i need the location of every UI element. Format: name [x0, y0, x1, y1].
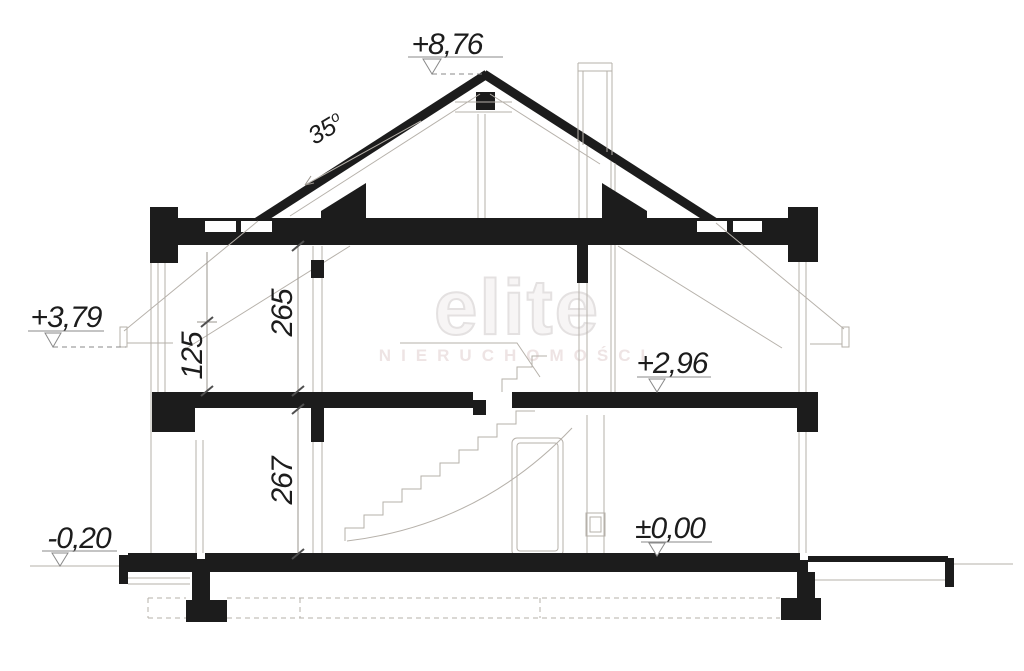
attic-left-window [158, 263, 165, 392]
level-triangle [52, 553, 68, 566]
level-triangle [423, 59, 441, 74]
right-terrace-slab [808, 556, 948, 562]
left-footing [186, 600, 227, 622]
foundation [30, 553, 1013, 622]
right-footing [781, 598, 821, 620]
left-wall-head [150, 207, 178, 263]
section-drawing: elite NIERUCHOMOŚCI [0, 0, 1024, 671]
dim-ground-floor-height: 267 [266, 455, 299, 505]
level-terrain-label: -0,20 [47, 522, 112, 555]
level-terrain: -0,20 [42, 522, 117, 566]
left-window-lintel [152, 392, 195, 432]
level-triangle [45, 333, 61, 347]
left-purlin-block [321, 183, 366, 220]
level-eaves: +3,79 [28, 301, 126, 347]
level-ridge-label: +8,76 [412, 28, 484, 61]
dim-knee-wall-height: 125 [176, 331, 209, 379]
flue-access-box [586, 513, 605, 536]
floor-slab [152, 392, 818, 442]
dim-attic-room-height: 265 [266, 288, 299, 337]
roof-angle-note: 35o [303, 108, 421, 185]
ground-slab [128, 553, 808, 572]
right-purlin-block [602, 183, 647, 220]
level-ground-floor: ±0,00 [635, 512, 712, 556]
level-eaves-label: +3,79 [31, 301, 103, 334]
level-markers: +8,76 +3,79 +2,96 ±0,00 [28, 28, 712, 566]
right-fascia [842, 327, 849, 347]
stair-stringer-curve [347, 428, 572, 541]
right-window-lintel [797, 408, 818, 432]
right-wall-head [788, 207, 818, 262]
level-first-floor-label: +2,96 [637, 347, 709, 380]
roof [257, 74, 716, 226]
interior-door [512, 438, 563, 556]
level-triangle [649, 379, 665, 392]
right-pier [797, 572, 815, 598]
staircase [345, 343, 572, 541]
stair-trimmer [473, 400, 486, 415]
excavation-dashed-outline [148, 598, 780, 618]
level-first-floor: +2,96 [637, 347, 711, 392]
interior-wall-lintel [311, 408, 324, 442]
attic-right-window [799, 262, 806, 392]
cross-section-svg: 265 125 267 35o +8,76 +3,79 [0, 0, 1024, 671]
left-pier [192, 572, 210, 600]
level-ridge: +8,76 [408, 28, 503, 74]
knee-wall-beam [311, 260, 324, 278]
flue-section [577, 245, 588, 283]
level-ground-floor-label: ±0,00 [635, 512, 706, 545]
attic-storey [150, 183, 818, 392]
roof-angle-label: 35o [303, 108, 348, 151]
